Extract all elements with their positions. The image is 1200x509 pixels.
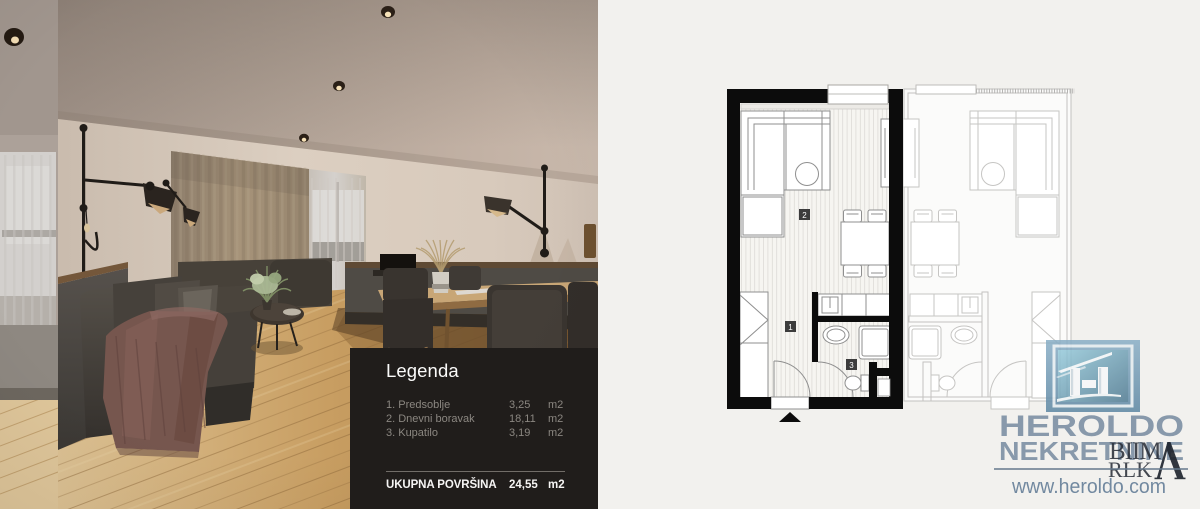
svg-text:3: 3 xyxy=(849,361,854,370)
svg-text:2: 2 xyxy=(802,211,807,220)
svg-text:1: 1 xyxy=(788,323,793,332)
svg-text:www.heroldo.com: www.heroldo.com xyxy=(1011,476,1166,498)
